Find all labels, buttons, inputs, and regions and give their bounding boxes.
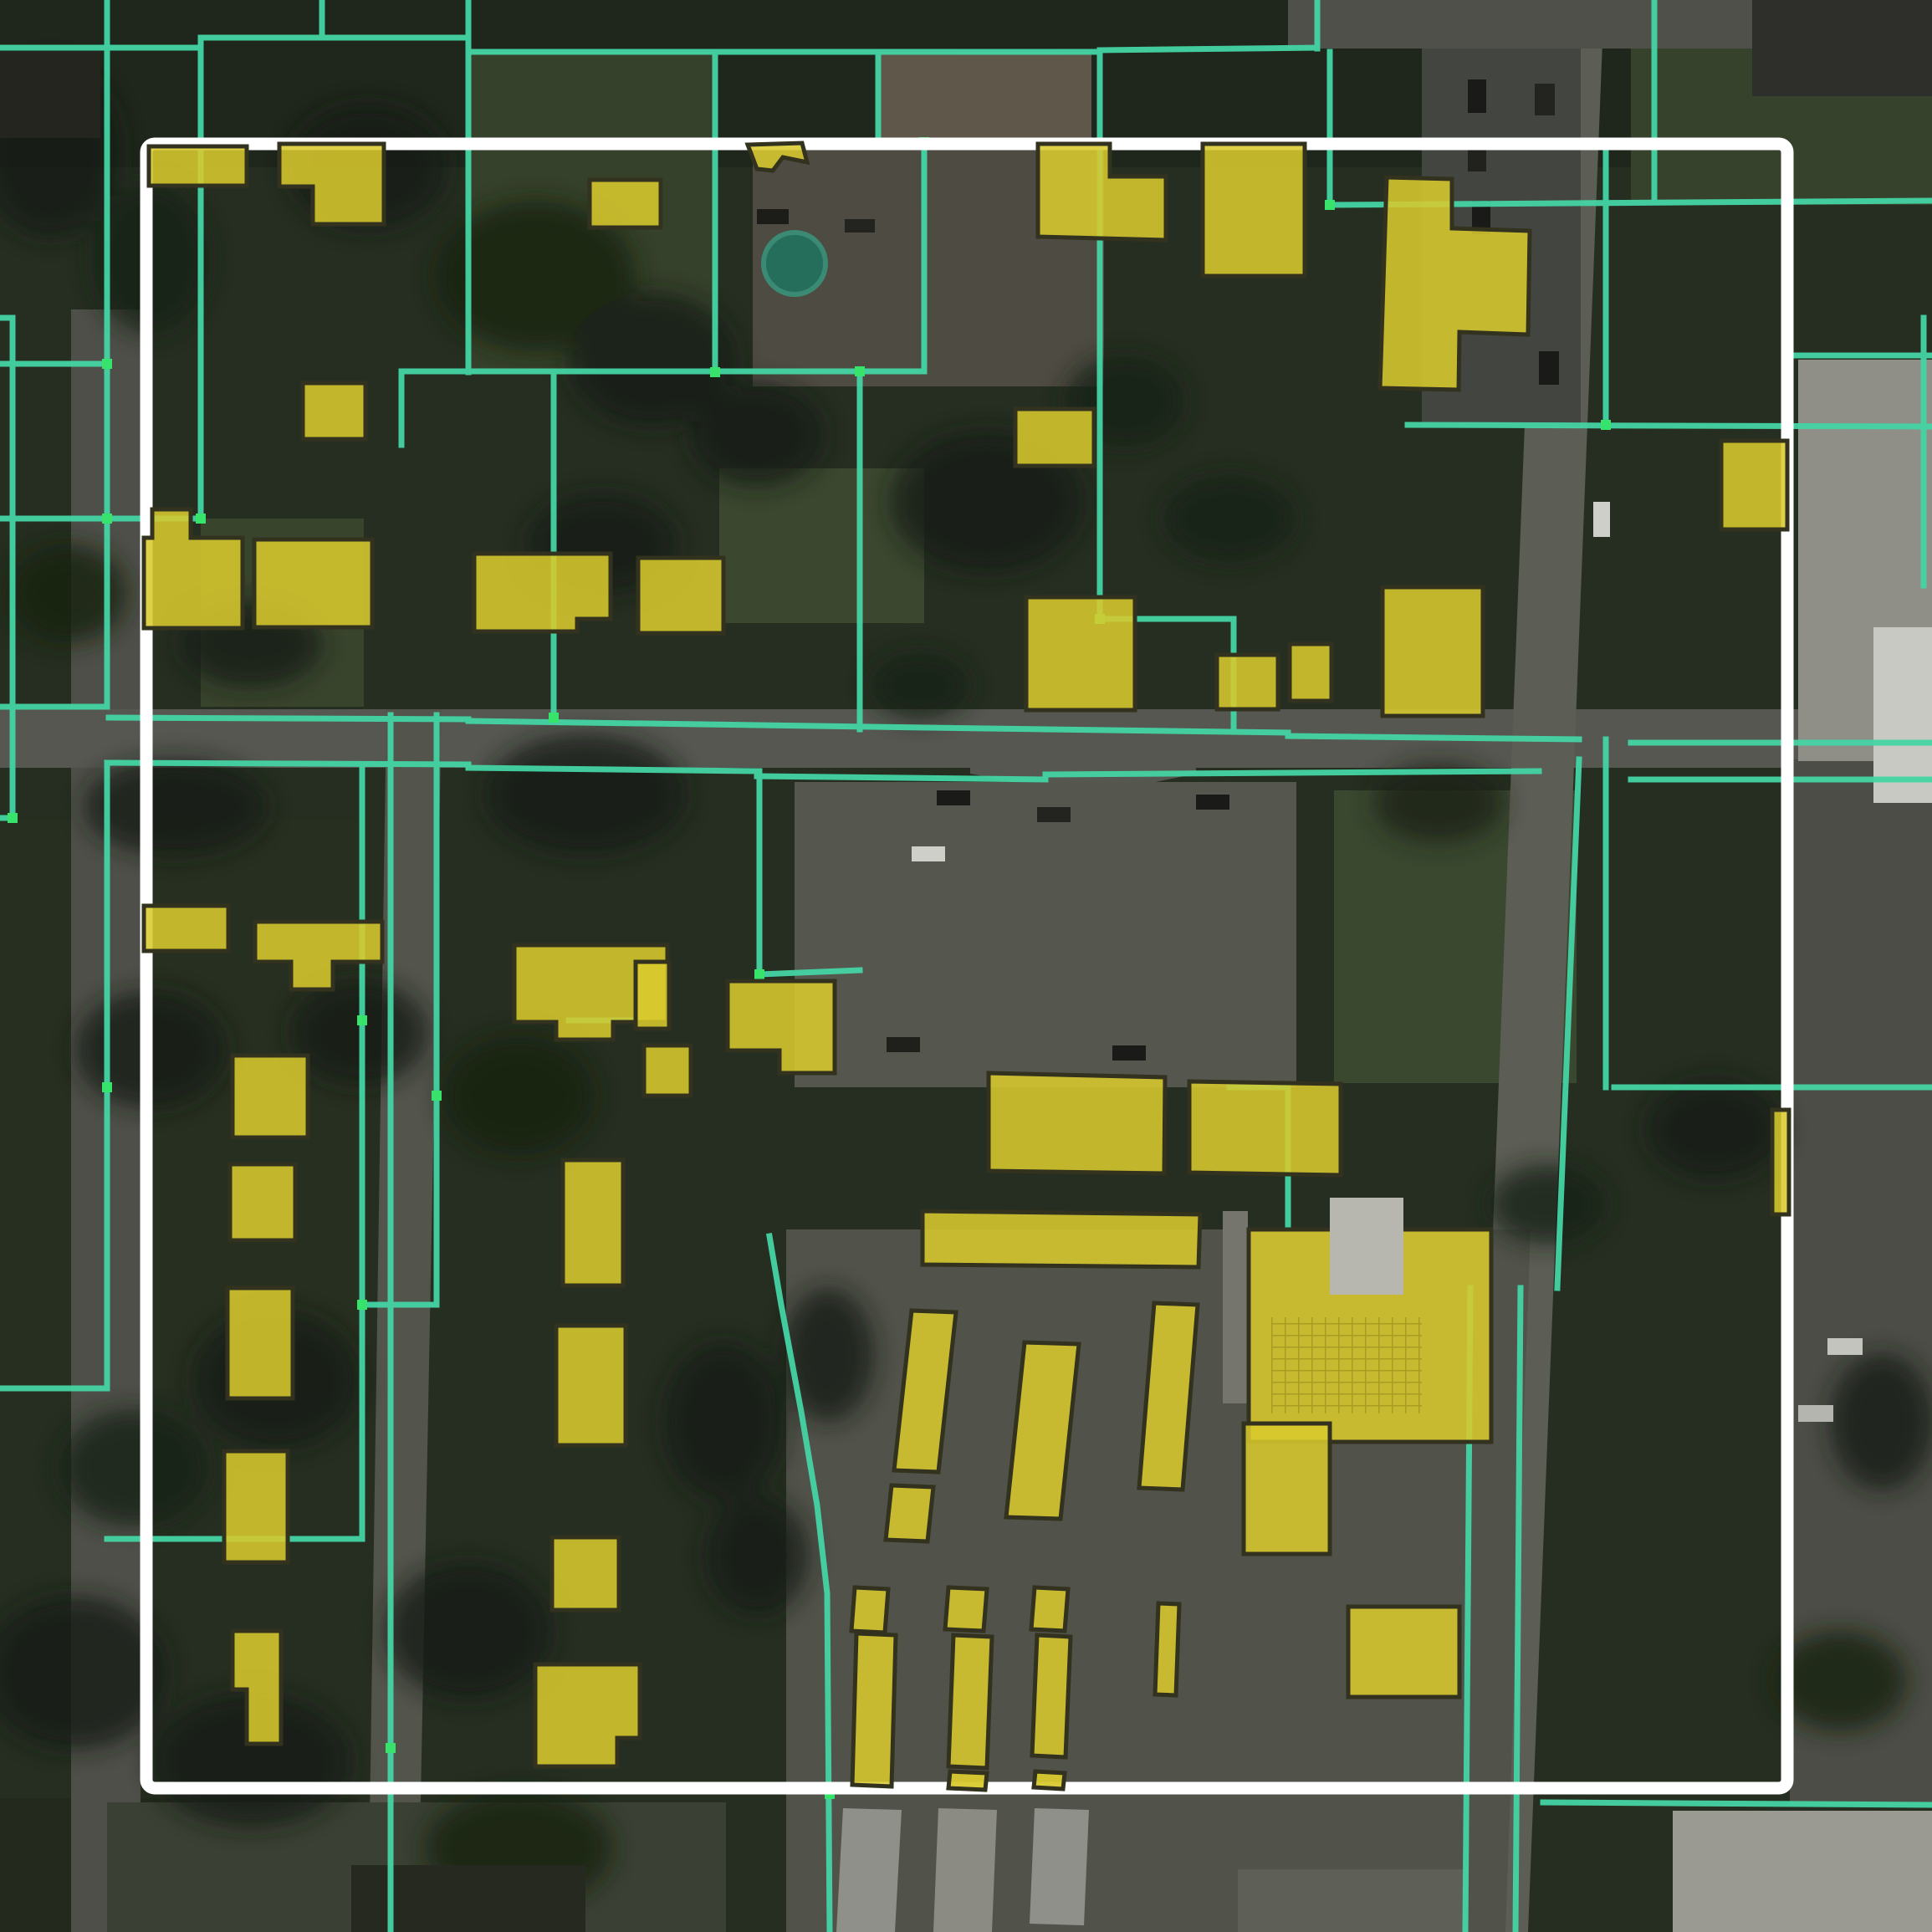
tree-canopy	[442, 1035, 595, 1156]
tree-canopy	[1646, 1079, 1783, 1179]
parcel-boundary-line	[757, 776, 1045, 779]
building-footprint[interactable]	[227, 1288, 293, 1398]
unlabeled-roof	[351, 1865, 585, 1932]
tree-canopy	[1830, 1353, 1932, 1490]
tree-canopy	[84, 759, 268, 856]
building-footprint[interactable]	[1032, 1635, 1071, 1757]
tree-canopy	[1163, 475, 1296, 562]
roof-detail-overlay	[1034, 1771, 1065, 1789]
unlabeled-roof	[1673, 1811, 1932, 1932]
parcel-node-dot	[432, 1091, 442, 1101]
parked-car	[1468, 79, 1486, 113]
parcel-boundary-line	[109, 718, 468, 719]
building-footprint[interactable]	[636, 962, 669, 1029]
aerial-map-view	[0, 0, 1932, 1932]
parked-car	[1112, 1045, 1146, 1061]
parked-car	[1196, 795, 1229, 810]
terrain-patch	[878, 52, 1091, 142]
building-footprint[interactable]	[144, 906, 228, 951]
building-footprint[interactable]	[1031, 1587, 1068, 1631]
parked-car	[845, 219, 875, 233]
parcel-node-dot	[549, 713, 559, 723]
building-footprint[interactable]	[233, 1055, 308, 1137]
parcel-node-dot	[754, 969, 764, 979]
unlabeled-roof	[1030, 1808, 1089, 1925]
parcel-node-dot	[710, 367, 720, 377]
building-footprint[interactable]	[590, 180, 661, 227]
parcel-boundary-line	[1543, 1802, 1932, 1805]
unlabeled-roof	[0, 46, 100, 138]
parcel-node-dot	[102, 1082, 112, 1092]
building-footprint[interactable]	[1015, 409, 1094, 466]
building-footprint[interactable]	[254, 539, 372, 627]
unlabeled-roof	[836, 1808, 902, 1932]
parked-car	[1593, 502, 1610, 537]
building-footprint[interactable]	[1721, 441, 1787, 529]
tree-canopy	[690, 383, 824, 487]
parked-car	[912, 846, 945, 861]
building-footprint[interactable]	[552, 1537, 619, 1610]
building-footprint[interactable]	[1772, 1110, 1789, 1214]
parcel-node-dot	[1601, 420, 1611, 430]
parked-car	[1798, 1405, 1833, 1422]
building-footprint[interactable]	[989, 1073, 1165, 1173]
unlabeled-roof	[933, 1808, 997, 1932]
roof-detail-overlay	[1330, 1198, 1403, 1295]
building-footprint[interactable]	[851, 1587, 888, 1633]
parcel-node-dot	[196, 514, 206, 524]
building-footprint[interactable]	[230, 1164, 295, 1240]
parcel-boundary-line	[1288, 736, 1579, 739]
building-footprint[interactable]	[149, 146, 247, 186]
swimming-pool	[764, 233, 825, 294]
building-footprint[interactable]	[1189, 1081, 1341, 1175]
building-footprint[interactable]	[644, 1045, 691, 1096]
roof-detail-overlay	[1271, 1317, 1422, 1413]
road-surface	[1223, 1211, 1248, 1403]
building-footprint[interactable]	[563, 1160, 623, 1285]
building-footprint[interactable]	[1383, 587, 1483, 716]
tree-canopy	[663, 1342, 784, 1501]
tree-canopy	[870, 652, 970, 719]
tree-canopy	[385, 1562, 552, 1699]
building-footprint[interactable]	[948, 1635, 992, 1768]
parked-car	[887, 1037, 920, 1052]
building-footprint[interactable]	[923, 1211, 1200, 1267]
parked-car	[757, 209, 789, 224]
parcel-node-dot	[102, 359, 112, 369]
parked-car	[1037, 807, 1071, 822]
building-footprint[interactable]	[1026, 597, 1135, 710]
parcel-boundary-line	[1045, 771, 1539, 774]
building-footprint[interactable]	[1348, 1607, 1459, 1697]
parcel-node-dot	[357, 1300, 367, 1310]
parcel-node-dot	[386, 1743, 396, 1753]
tree-canopy	[705, 1495, 809, 1616]
unlabeled-roof	[1752, 0, 1932, 96]
tree-canopy	[1489, 1164, 1606, 1245]
parcel-node-dot	[1325, 200, 1335, 210]
building-footprint[interactable]	[303, 383, 365, 439]
parcel-boundary-line	[1100, 48, 1317, 50]
parcel-boundary-line	[468, 768, 757, 771]
parked-car	[937, 790, 970, 805]
parcel-node-dot	[357, 1015, 367, 1025]
building-footprint[interactable]	[474, 554, 611, 631]
parcel-boundary-line	[1408, 425, 1932, 427]
building-footprint[interactable]	[1217, 655, 1278, 709]
parcel-boundary-line	[109, 763, 468, 764]
building-footprint[interactable]	[224, 1451, 288, 1562]
building-footprint[interactable]	[1203, 144, 1305, 276]
pool	[764, 233, 825, 294]
building-footprint[interactable]	[556, 1326, 626, 1445]
building-footprint[interactable]	[945, 1587, 987, 1631]
tree-canopy	[782, 1288, 874, 1422]
tree-canopy	[485, 734, 686, 855]
parcel-node-dot	[8, 813, 18, 823]
building-footprint[interactable]	[1244, 1423, 1330, 1554]
tree-canopy	[59, 1409, 209, 1526]
building-footprint[interactable]	[1155, 1603, 1179, 1695]
parcel-boundary-line	[1045, 729, 1288, 733]
parcel-node-dot	[855, 366, 865, 376]
parked-car	[1539, 351, 1559, 385]
parked-car	[1827, 1338, 1863, 1355]
building-footprint[interactable]	[852, 1633, 896, 1786]
parcel-node-dot	[102, 514, 112, 524]
building-footprint[interactable]	[638, 558, 723, 633]
building-footprint[interactable]	[886, 1485, 933, 1541]
road-surface	[795, 782, 1296, 1087]
building-footprint[interactable]	[1290, 644, 1331, 701]
unlabeled-roof	[1238, 1869, 1468, 1932]
roof-detail-overlay	[948, 1771, 987, 1790]
scene-svg	[0, 0, 1932, 1932]
parked-car	[1535, 84, 1555, 115]
